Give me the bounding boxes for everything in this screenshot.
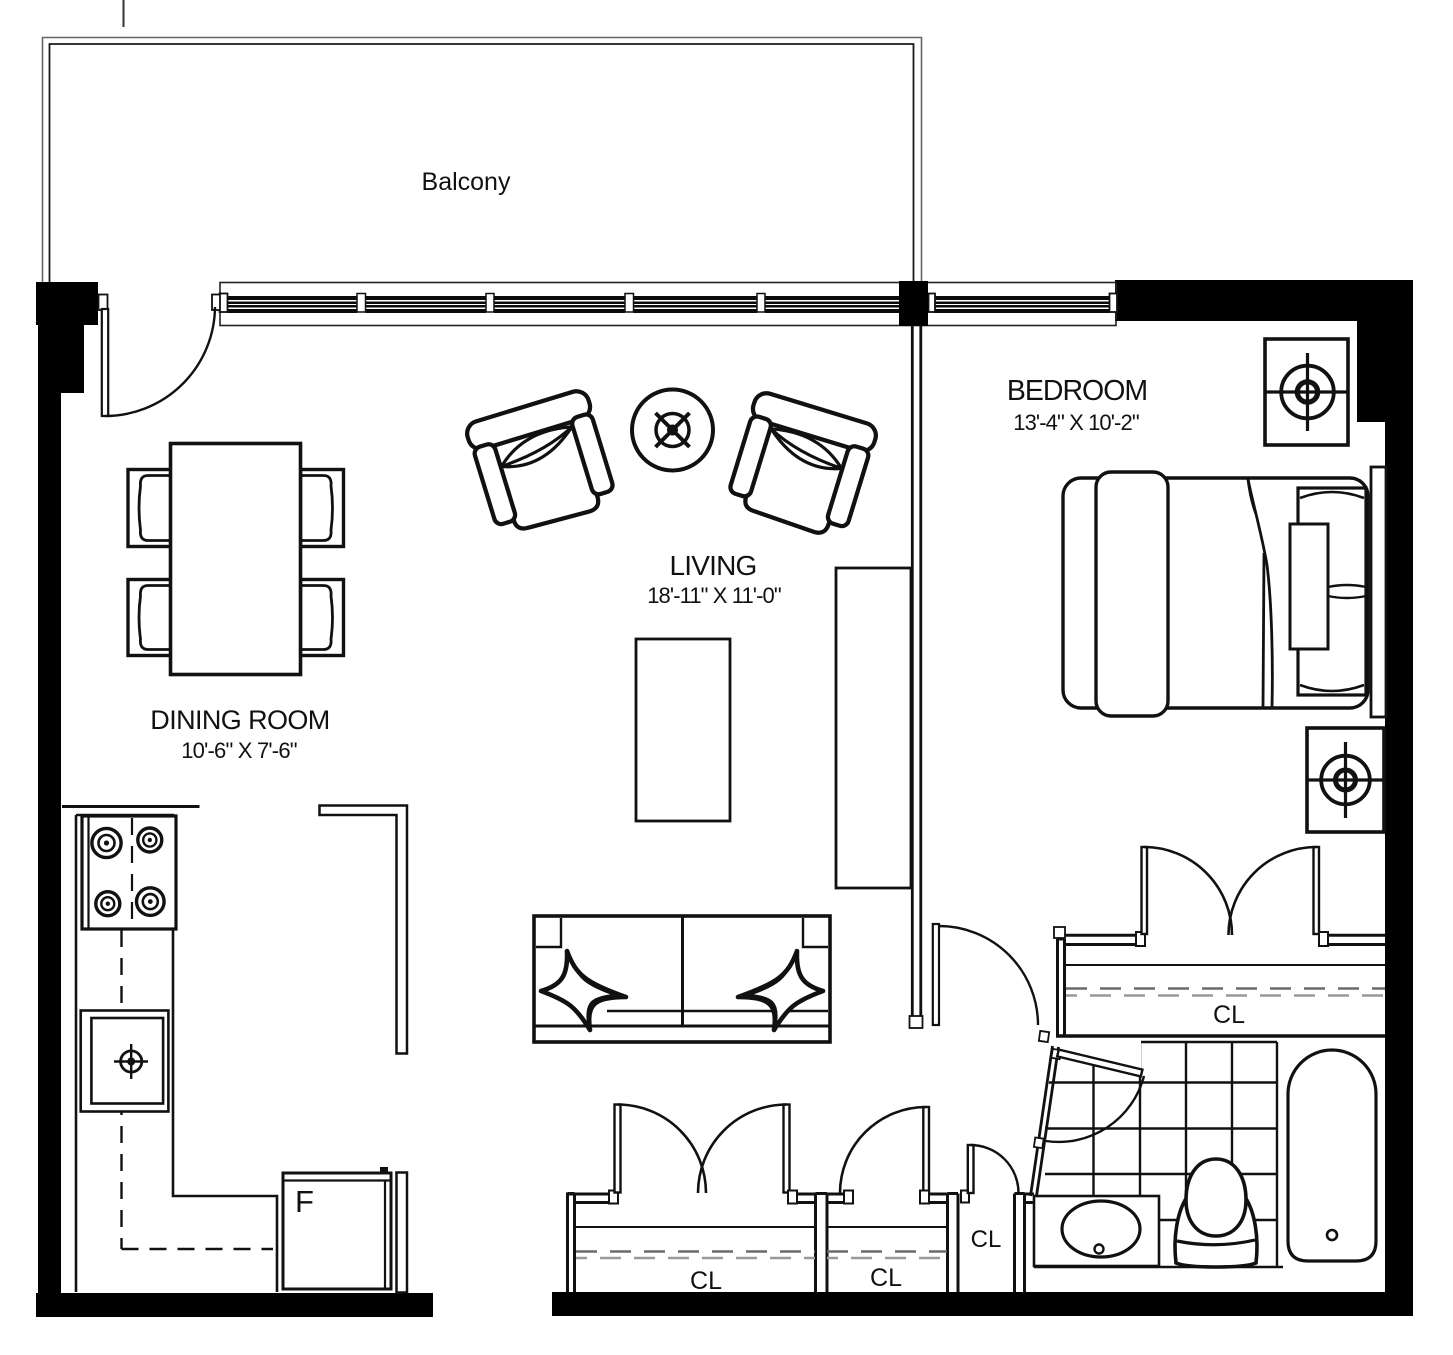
svg-text:CL: CL xyxy=(690,1267,722,1295)
svg-text:13'-4" X 10'-2": 13'-4" X 10'-2" xyxy=(1013,410,1139,435)
svg-text:BEDROOM: BEDROOM xyxy=(1007,375,1147,407)
svg-text:10'-6" X 7'-6": 10'-6" X 7'-6" xyxy=(181,738,297,763)
svg-text:CL: CL xyxy=(971,1226,1002,1253)
svg-text:18'-11" X 11'-0": 18'-11" X 11'-0" xyxy=(647,583,781,608)
svg-text:CL: CL xyxy=(1213,1001,1245,1029)
svg-text:DINING ROOM: DINING ROOM xyxy=(150,705,329,735)
svg-text:LIVING: LIVING xyxy=(669,550,756,581)
svg-text:CL: CL xyxy=(870,1264,902,1292)
svg-text:Balcony: Balcony xyxy=(422,168,511,196)
svg-text:F: F xyxy=(295,1184,314,1219)
